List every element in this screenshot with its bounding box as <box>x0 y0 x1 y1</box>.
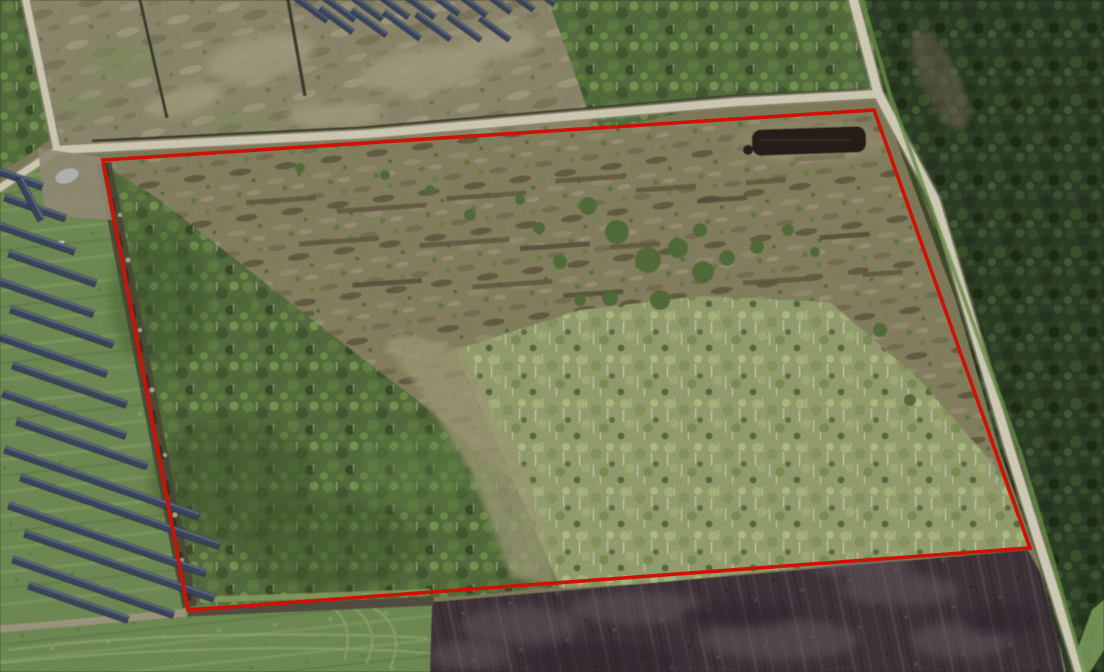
aerial-map-canvas[interactable] <box>0 0 1104 672</box>
photo-grain-overlay <box>0 0 1104 672</box>
